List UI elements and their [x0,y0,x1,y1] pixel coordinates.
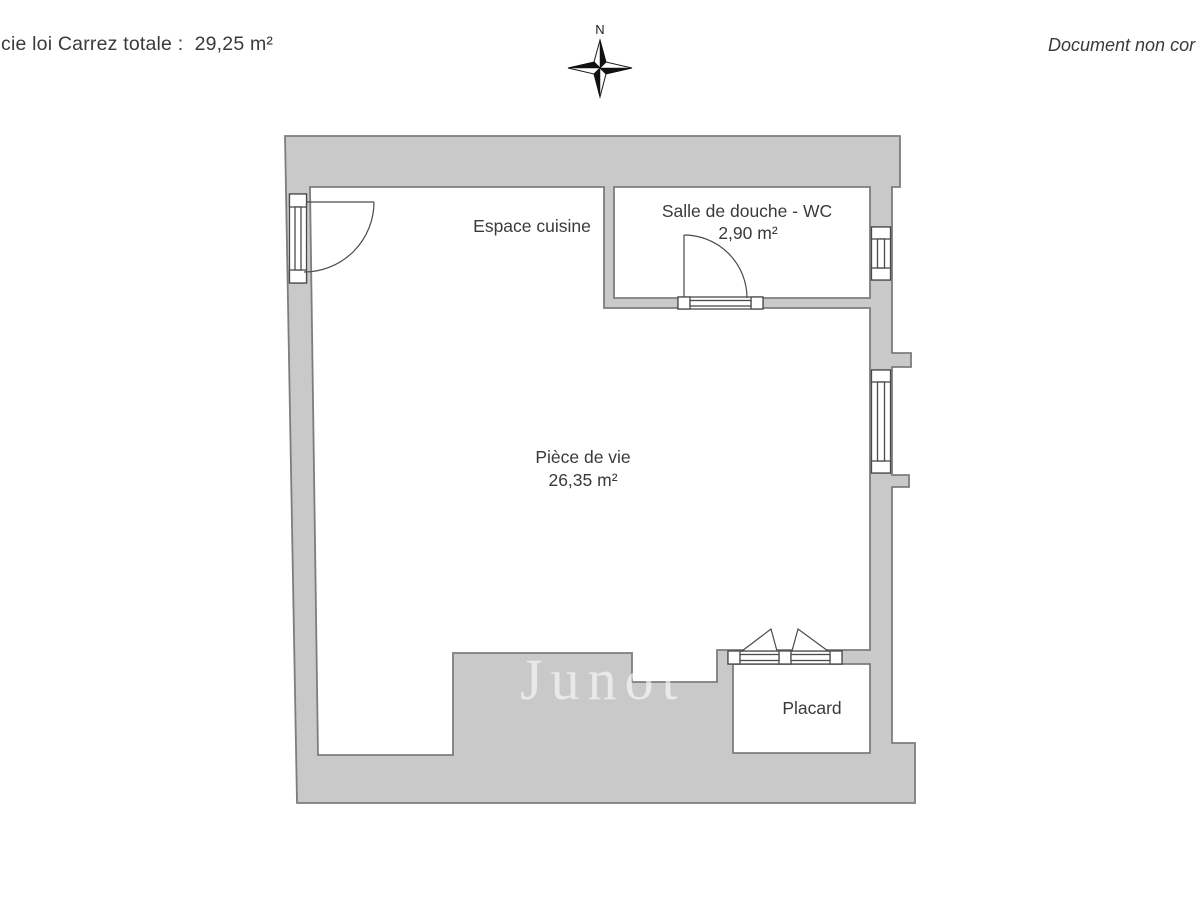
entrance-door-symbol [290,194,375,283]
window-symbol-lower [872,370,891,473]
window-frame-cap [872,227,891,239]
compass-arm-west-fill [568,62,600,68]
window-glazing-lines [878,382,885,461]
door-frame-cap [830,651,842,664]
door-frame-cap [290,270,307,283]
window-frame-cap [872,370,891,382]
window-glazing-lines [878,239,885,268]
window-frame-cap [872,461,891,473]
window-frame-cap [872,268,891,280]
room-area-piece-de-vie: 26,35 m² [548,470,617,490]
junot-watermark: Junot [520,647,686,712]
floor-plan-page: { "header": { "left_text": "cie loi Carr… [0,0,1200,900]
door-frame-rails [295,207,301,270]
door-frame-rails [740,655,779,661]
room-label-cuisine: Espace cuisine [473,216,591,236]
bifold-panel-right [792,629,828,651]
room-label-piece-de-vie: Pièce de vie [535,447,630,467]
room-area-douche: 2,90 m² [718,223,777,243]
door-swing-arc [684,235,747,298]
floor-plan-canvas: Junot [0,0,1200,900]
door-frame-rails [791,655,830,661]
compass-north-label: N [595,22,604,37]
room-label-placard: Placard [782,698,841,718]
door-frame-cap [751,297,763,309]
door-frame-cap [678,297,690,309]
compass-rose-icon: N [568,22,632,97]
room-label-douche: Salle de douche - WC [662,201,832,221]
door-frame-cap [290,194,307,207]
closet-bifold-door-symbol [728,629,842,664]
door-swing-arc [304,202,374,272]
window-symbol-upper [872,227,891,280]
shower-door-symbol [678,235,763,309]
door-frame-rails [690,301,751,307]
bifold-panel-left [742,629,777,651]
door-frame-cap [779,651,791,664]
door-frame-cap [728,651,740,664]
